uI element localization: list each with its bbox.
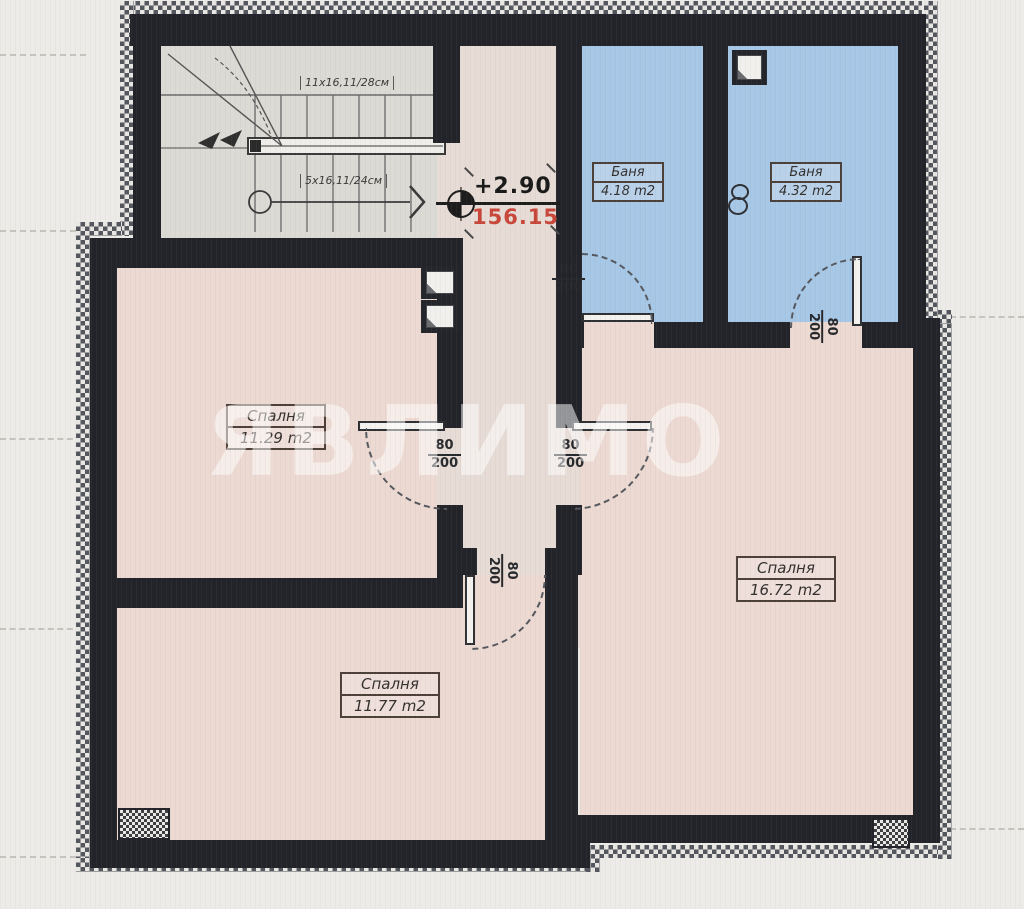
- room-name: Спалня: [738, 558, 834, 580]
- plan-border-edging: [924, 1, 938, 323]
- room-area: 11.29 m2: [228, 428, 324, 448]
- door-height: 200: [486, 554, 504, 587]
- door-width: 80: [560, 262, 578, 278]
- wall-segment: [133, 14, 161, 264]
- stair-lower-flight-label: 5x16,11/24см: [300, 174, 387, 188]
- room-name: Спалня: [228, 406, 324, 428]
- door-size-label: 80 200: [552, 262, 585, 295]
- room-name: Баня: [594, 164, 662, 183]
- wall-segment: [90, 840, 590, 868]
- plan-border-edging: [938, 310, 952, 859]
- room-area: 16.72 m2: [738, 580, 834, 600]
- vent-shaft-icon: [421, 300, 459, 333]
- wall-segment: [556, 348, 582, 428]
- vent-shaft-icon: [421, 266, 459, 299]
- wall-segment: [703, 46, 728, 348]
- room-label-bedroom-bottom: Спалня 11.77 m2: [340, 672, 440, 718]
- wall-segment: [90, 238, 463, 268]
- wall-segment: [130, 14, 905, 46]
- wall-segment: [556, 322, 584, 348]
- room-label-bedroom-right: Спалня 16.72 m2: [736, 556, 836, 602]
- guide-line: [0, 230, 76, 232]
- guide-line: [0, 54, 86, 56]
- wall-segment: [433, 46, 460, 143]
- door-width: 80: [562, 438, 580, 454]
- wall-segment: [90, 238, 117, 868]
- guide-line: [950, 316, 1024, 318]
- chimney-icon: [118, 808, 170, 840]
- room-name: Спалня: [342, 674, 438, 696]
- door-width: 80: [504, 562, 520, 580]
- door-width: 80: [436, 438, 454, 454]
- door-size-label: 80 200: [428, 438, 461, 471]
- door-height: 200: [552, 278, 585, 296]
- wall-segment: [545, 548, 578, 843]
- door-width: 80: [824, 318, 840, 336]
- elevation-level: +2.90: [474, 174, 552, 199]
- wall-segment: [115, 578, 463, 608]
- plan-border-edging: [76, 222, 90, 872]
- room-label-bedroom-left: Спалня 11.29 m2: [226, 404, 326, 450]
- room-area: 11.77 m2: [342, 696, 438, 716]
- door-height: 200: [806, 310, 824, 343]
- chimney-icon: [872, 818, 910, 848]
- elevation-altitude: 156.15: [472, 205, 559, 229]
- room-name: Баня: [772, 164, 840, 183]
- door-height: 200: [554, 454, 587, 472]
- room-label-bathroom-left: Баня 4.18 m2: [592, 162, 664, 202]
- guide-line: [950, 828, 1024, 830]
- floor-plan: 11x16,11/28см 5x16,11/24см 80 200: [0, 0, 1024, 909]
- door-height: 200: [428, 454, 461, 472]
- guide-line: [0, 856, 76, 858]
- plan-border-edging: [122, 1, 922, 15]
- wall-segment: [913, 318, 940, 843]
- wall-segment: [898, 14, 926, 332]
- room-label-bathroom-right: Баня 4.32 m2: [770, 162, 842, 202]
- plumbing-icon: [726, 183, 754, 215]
- window-icon: [732, 50, 767, 85]
- door-size-label: 80 200: [806, 310, 839, 343]
- staircase-drawing: [160, 46, 460, 238]
- wall-segment: [437, 548, 477, 575]
- wall-segment: [862, 322, 930, 348]
- stair-upper-flight-label: 11x16,11/28см: [300, 76, 394, 90]
- room-area: 4.18 m2: [594, 183, 662, 200]
- door-size-label: 80 200: [486, 554, 519, 587]
- room-area: 4.32 m2: [772, 183, 840, 200]
- door-size-label: 80 200: [554, 438, 587, 471]
